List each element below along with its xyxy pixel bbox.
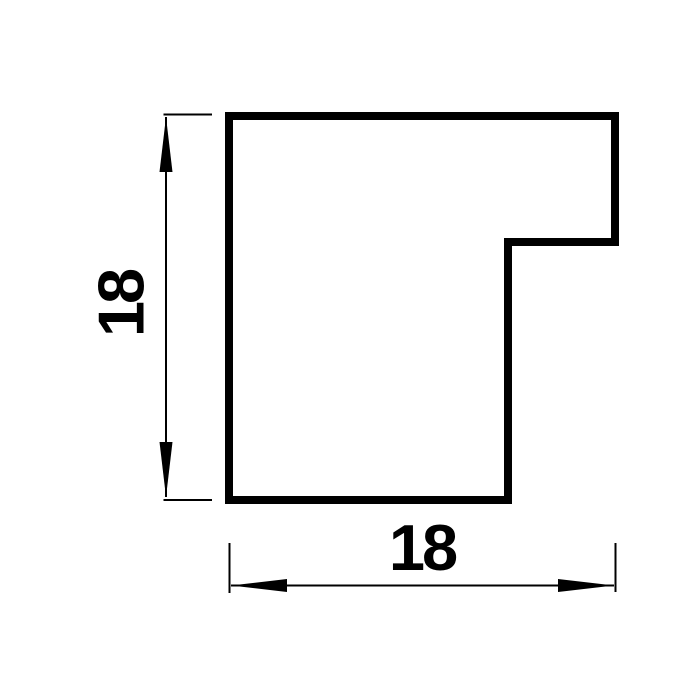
- technical-drawing-svg: 18 18: [0, 0, 700, 700]
- arrowhead-right-icon: [558, 579, 614, 592]
- height-dimension-label: 18: [85, 269, 158, 337]
- drawing-canvas: 18 18: [0, 0, 700, 700]
- horizontal-dimension: 18: [230, 511, 616, 593]
- arrowhead-up-icon: [160, 117, 173, 172]
- profile-outline: [229, 116, 615, 500]
- arrowhead-down-icon: [160, 442, 173, 497]
- profile-section: [229, 116, 615, 500]
- vertical-dimension: 18: [85, 115, 213, 501]
- arrowhead-left-icon: [231, 579, 287, 592]
- width-dimension-label: 18: [389, 511, 457, 584]
